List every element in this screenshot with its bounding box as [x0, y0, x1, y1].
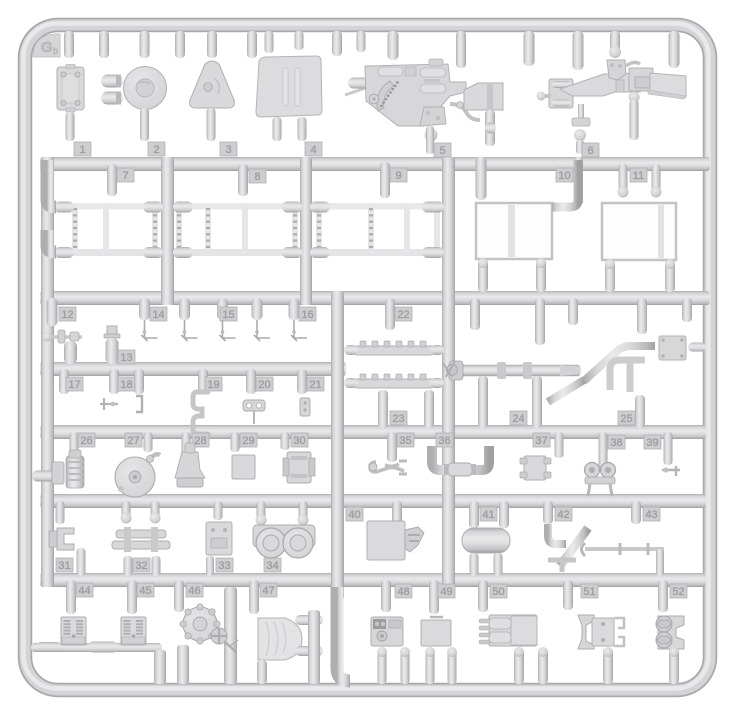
svg-text:3: 3 — [225, 144, 231, 156]
svg-text:27: 27 — [127, 435, 139, 447]
svg-text:36: 36 — [438, 435, 450, 447]
svg-text:5: 5 — [439, 145, 445, 157]
svg-text:32: 32 — [135, 560, 147, 572]
svg-text:b: b — [53, 46, 58, 56]
svg-text:9: 9 — [395, 170, 401, 182]
svg-text:33: 33 — [218, 560, 230, 572]
svg-text:41: 41 — [482, 509, 494, 521]
svg-text:24: 24 — [512, 413, 524, 425]
svg-text:48: 48 — [397, 586, 409, 598]
svg-text:8: 8 — [254, 171, 260, 183]
svg-text:51: 51 — [583, 586, 595, 598]
svg-text:1: 1 — [79, 144, 85, 156]
svg-text:47: 47 — [262, 585, 274, 597]
svg-text:15: 15 — [222, 309, 234, 321]
svg-text:38: 38 — [610, 437, 622, 449]
svg-text:49: 49 — [440, 586, 452, 598]
svg-text:7: 7 — [122, 170, 128, 182]
svg-text:14: 14 — [152, 309, 164, 321]
svg-text:52: 52 — [672, 586, 684, 598]
svg-text:30: 30 — [293, 435, 305, 447]
svg-text:11: 11 — [633, 170, 644, 182]
svg-text:46: 46 — [188, 585, 200, 597]
svg-text:12: 12 — [61, 309, 73, 321]
svg-text:42: 42 — [557, 509, 569, 521]
svg-text:20: 20 — [258, 379, 270, 391]
svg-text:13: 13 — [120, 352, 132, 364]
svg-text:19: 19 — [207, 379, 219, 391]
svg-text:26: 26 — [80, 435, 92, 447]
svg-text:6: 6 — [587, 145, 593, 157]
svg-text:29: 29 — [242, 435, 254, 447]
svg-text:21: 21 — [309, 379, 321, 391]
svg-text:2: 2 — [153, 144, 159, 156]
svg-text:23: 23 — [392, 413, 404, 425]
svg-text:43: 43 — [645, 509, 657, 521]
svg-text:17: 17 — [68, 379, 80, 391]
svg-text:50: 50 — [492, 586, 504, 598]
svg-text:G: G — [41, 39, 53, 56]
svg-text:18: 18 — [120, 379, 132, 391]
svg-text:25: 25 — [620, 413, 632, 425]
svg-text:40: 40 — [348, 509, 360, 521]
svg-text:31: 31 — [58, 560, 70, 572]
svg-text:10: 10 — [558, 170, 570, 182]
svg-text:28: 28 — [194, 435, 206, 447]
svg-text:35: 35 — [399, 435, 411, 447]
svg-text:37: 37 — [535, 435, 547, 447]
svg-text:22: 22 — [397, 309, 409, 321]
svg-text:45: 45 — [139, 585, 151, 597]
svg-text:34: 34 — [266, 560, 278, 572]
svg-text:16: 16 — [301, 309, 313, 321]
svg-text:44: 44 — [78, 585, 90, 597]
svg-text:4: 4 — [310, 144, 316, 156]
svg-text:39: 39 — [646, 437, 658, 449]
